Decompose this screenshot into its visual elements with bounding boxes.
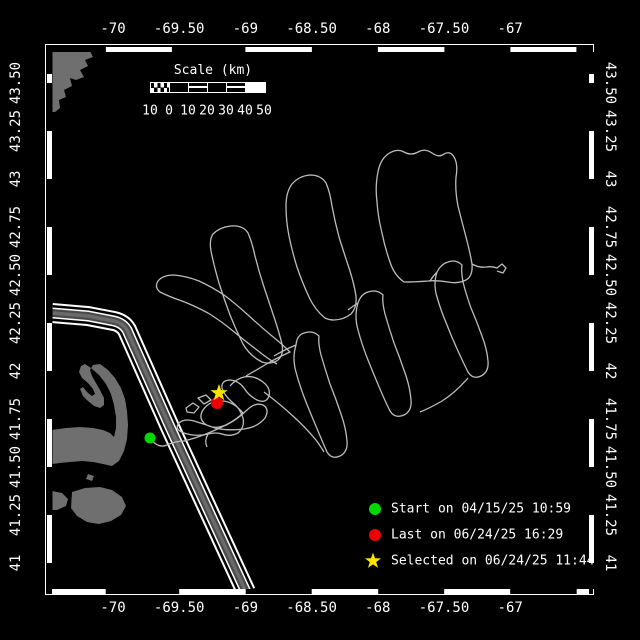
landmass xyxy=(71,487,126,524)
survey-track xyxy=(156,275,290,376)
start-marker xyxy=(145,433,156,444)
survey-track xyxy=(294,332,347,457)
landmass xyxy=(52,364,128,466)
legend-label: Start on 04/15/25 10:59 xyxy=(391,502,571,517)
legend-label: Selected on 06/24/25 11:44 xyxy=(391,554,595,569)
survey-track xyxy=(420,378,468,412)
legend-circle-marker xyxy=(369,529,381,541)
survey-track xyxy=(186,403,199,413)
survey-track xyxy=(356,291,411,416)
last-marker xyxy=(211,397,223,409)
legend-label: Last on 06/24/25 16:29 xyxy=(391,528,563,543)
landmass xyxy=(52,51,93,112)
survey-track xyxy=(376,150,472,282)
survey-track xyxy=(177,377,269,436)
map-canvas xyxy=(0,0,640,640)
survey-track xyxy=(206,434,208,447)
landmass xyxy=(52,491,68,510)
legend-star-marker xyxy=(365,553,381,568)
landmass xyxy=(86,474,94,481)
survey-track xyxy=(264,392,324,452)
survey-track xyxy=(472,264,506,273)
survey-track xyxy=(198,395,211,404)
survey-track xyxy=(435,261,488,377)
track-map-figure: Scale (km) -70-69.50-69-68.50-68-67.50-6… xyxy=(0,0,640,640)
survey-track xyxy=(286,175,356,320)
legend-circle-marker xyxy=(369,503,381,515)
